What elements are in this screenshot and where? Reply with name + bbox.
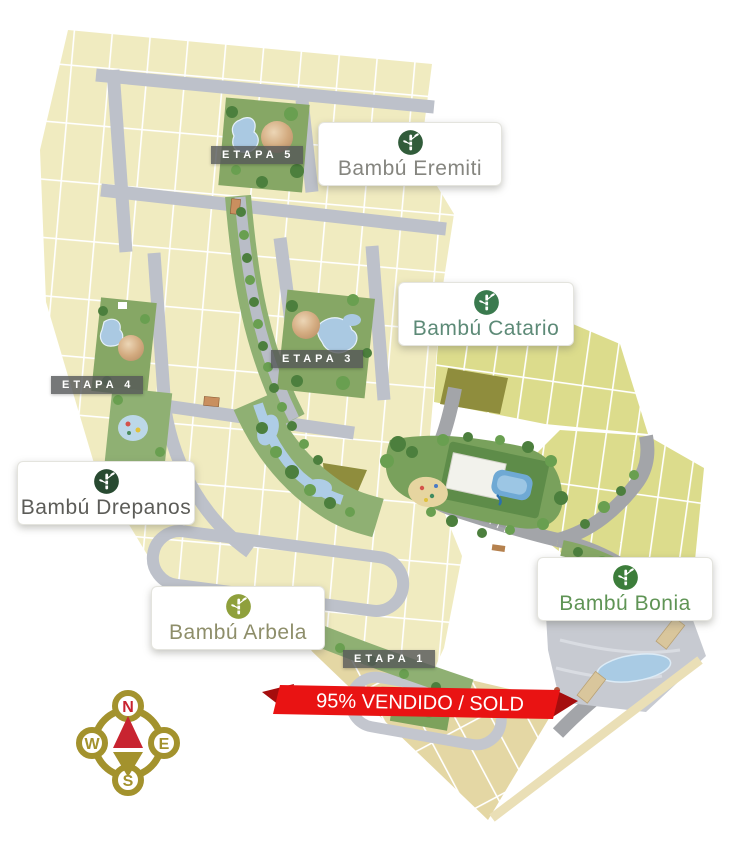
label-text-drepanos: Bambú Drepanos: [21, 497, 191, 518]
bench: [492, 544, 506, 552]
phase-chip-etapa-5: ETAPA 5: [211, 146, 303, 164]
bamboo-icon: [225, 593, 252, 620]
compass-e: E: [159, 736, 170, 753]
phase-chip-etapa-4: ETAPA 4: [51, 376, 143, 394]
label-card-catario: Bambú Catario: [398, 282, 574, 346]
masterplan-screenshot: 95% VENDIDO / SOLD N S W E ETAPA 5 ETAPA…: [0, 0, 730, 845]
phase-chip-etapa-3: ETAPA 3: [271, 350, 363, 368]
label-card-drepanos: Bambú Drepanos: [17, 461, 195, 525]
compass-n: N: [122, 699, 134, 716]
bamboo-icon: [93, 468, 120, 495]
compass-rose: N S W E: [79, 693, 177, 793]
compass-needle-north: [113, 716, 143, 748]
label-text-eremiti: Bambú Eremiti: [338, 158, 482, 179]
playground-splash: [118, 415, 148, 441]
banner-text: 95% VENDIDO / SOLD: [316, 690, 524, 716]
compass-w: W: [84, 736, 100, 753]
label-text-arbela: Bambú Arbela: [169, 622, 307, 643]
dome-etapa4: [118, 335, 144, 361]
compass-s: S: [123, 773, 134, 790]
bamboo-icon: [612, 564, 639, 591]
bamboo-icon: [397, 129, 424, 156]
crosswalk-2: [204, 396, 220, 406]
label-text-bonia: Bambú Bonia: [559, 593, 691, 614]
label-card-arbela: Bambú Arbela: [151, 586, 325, 650]
bamboo-icon: [473, 289, 500, 316]
sold-banner-ribbon: 95% VENDIDO / SOLD: [262, 684, 578, 719]
label-card-eremiti: Bambú Eremiti: [318, 122, 502, 186]
label-card-bonia: Bambú Bonia: [537, 557, 713, 621]
phase-chip-etapa-1: ETAPA 1: [343, 650, 435, 668]
dome-etapa3: [292, 311, 320, 339]
label-text-catario: Bambú Catario: [413, 318, 560, 339]
